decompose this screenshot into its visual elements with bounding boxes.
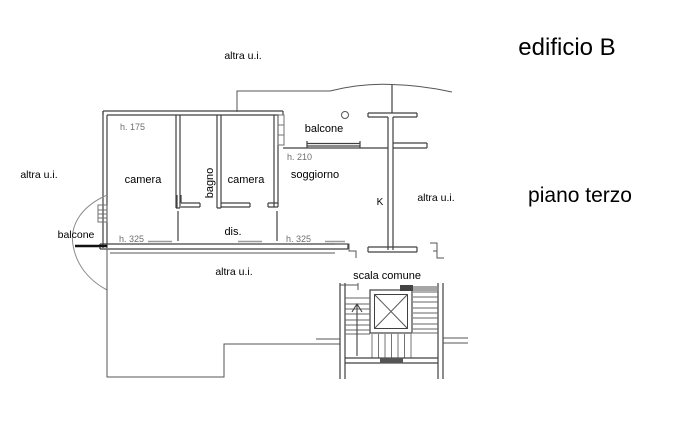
apartment-walls bbox=[103, 84, 427, 252]
staircase bbox=[316, 283, 468, 379]
other-unit-left-label: altra u.i. bbox=[20, 169, 57, 181]
stair-treads bbox=[345, 292, 438, 358]
wall-fill-gray bbox=[413, 286, 437, 291]
balcony-column-icon bbox=[342, 112, 349, 119]
plan-titles: edificio B piano terzo bbox=[518, 34, 632, 207]
left-balcony bbox=[72, 195, 107, 290]
other-unit-top-label: altra u.i. bbox=[224, 50, 261, 62]
room-camera2-label: camera bbox=[228, 174, 266, 186]
wall-fill-dark bbox=[380, 358, 403, 364]
top-balcony-edge bbox=[237, 84, 452, 118]
room-soggiorno-label: soggiorno bbox=[291, 169, 339, 181]
kitchen-k-label: K bbox=[377, 197, 384, 208]
scala-comune-label: scala comune bbox=[353, 270, 421, 282]
floor-plan-page: altra u.i. h. 175 camera bagno camera ba… bbox=[0, 0, 684, 425]
room-bagno-label: bagno bbox=[204, 168, 216, 199]
lower-unit-outline bbox=[107, 243, 444, 377]
height-dis-right-label: h. 325 bbox=[286, 234, 311, 244]
room-camera1-label: camera bbox=[125, 174, 163, 186]
other-unit-right-label: altra u.i. bbox=[417, 192, 454, 204]
balcone-top-label: balcone bbox=[305, 123, 344, 135]
elevator-shaft-icon bbox=[370, 290, 412, 333]
floor-title: piano terzo bbox=[528, 184, 632, 207]
floor-plan-drawing: altra u.i. h. 175 camera bagno camera ba… bbox=[0, 0, 684, 425]
balcone-left-label: balcone bbox=[58, 229, 95, 241]
height-dis-left-label: h. 325 bbox=[119, 234, 144, 244]
other-unit-bottom-label: altra u.i. bbox=[215, 266, 252, 278]
building-title: edificio B bbox=[518, 34, 615, 61]
room-dis-label: dis. bbox=[224, 226, 241, 238]
height-camera1-label: h. 175 bbox=[120, 122, 145, 132]
height-soggiorno-label: h. 210 bbox=[287, 152, 312, 162]
